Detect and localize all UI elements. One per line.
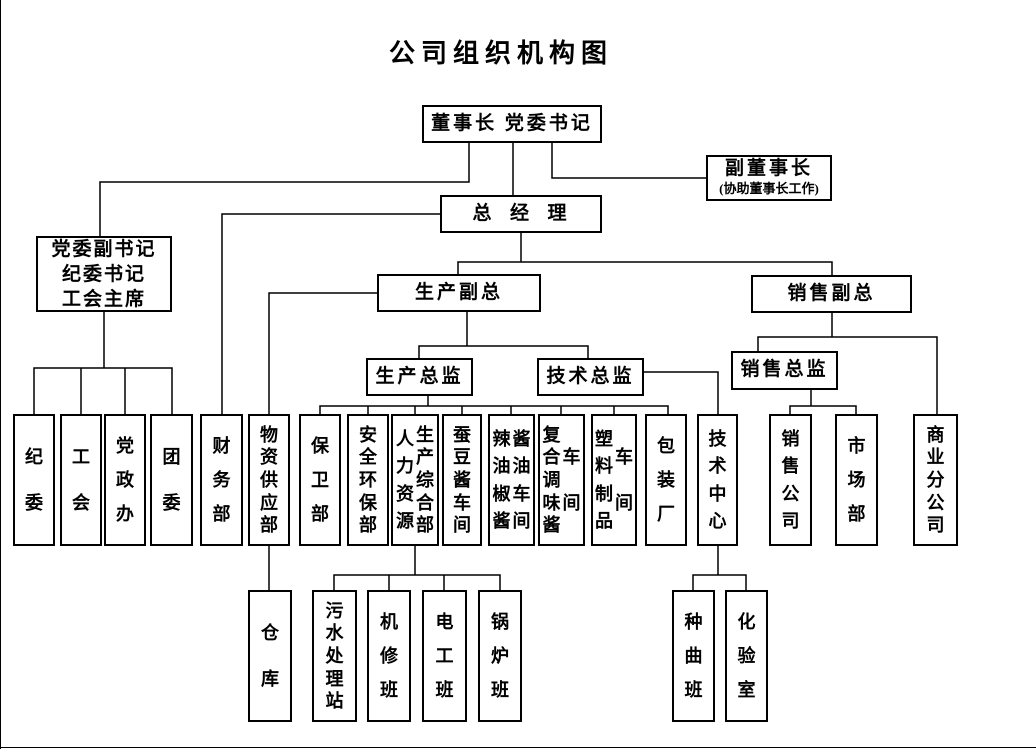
- production-director-box: 生产总监: [366, 358, 473, 396]
- dept-packaging-factory-label: 包装厂: [657, 421, 675, 539]
- party-secretary-line2: 纪委书记: [51, 262, 156, 287]
- dept-plastic-products-label: 塑料制品: [595, 421, 613, 539]
- dept-chili-soy-sauce-workshop: 辣油椒酱 酱油车间: [488, 414, 535, 546]
- dept-safety-env-label: 安全环保部: [359, 421, 377, 539]
- dept-commercial-branch-label: 商业分公司: [927, 421, 945, 539]
- dept-labor-union-label: 工会: [72, 421, 90, 539]
- dept-security: 保卫部: [299, 414, 341, 546]
- dept-plastic-products-workshop: 塑料制品 车间: [591, 414, 637, 546]
- sales-vp-label: 销售副总: [787, 283, 875, 306]
- team-laboratory-label: 化验室: [738, 597, 756, 715]
- team-sewage-treatment: 污水处理站: [312, 590, 357, 722]
- dept-hr-label: 人力资源: [396, 421, 414, 539]
- dept-labor-union: 工会: [60, 414, 102, 546]
- dept-production-general-label: 生产综合部: [416, 421, 434, 539]
- dept-compound-seasoning-workshop: 复合调味酱 车间: [538, 414, 585, 546]
- team-sewage-treatment-label: 污水处理站: [326, 597, 344, 715]
- team-boiler: 锅炉班: [478, 590, 522, 722]
- dept-youth-league: 团委: [150, 414, 193, 546]
- dept-party-admin-office: 党政办: [104, 414, 146, 546]
- vice-chairman-box: 副董事长 (协助董事长工作): [706, 155, 832, 201]
- dept-material-supply-label: 物资供应部: [260, 421, 278, 539]
- general-manager-box: 总 经 理: [440, 195, 602, 233]
- dept-technical-center-label: 技术中心: [709, 421, 727, 539]
- org-chart-page: 公司组织机构图: [0, 0, 1036, 749]
- party-secretary-box: 党委副书记 纪委书记 工会主席: [36, 236, 172, 312]
- dept-hr-production-general: 人力资源 生产综合部: [391, 414, 439, 546]
- team-laboratory: 化验室: [725, 590, 768, 722]
- dept-safety-env: 安全环保部: [347, 414, 389, 546]
- sales-director-box: 销售总监: [731, 351, 838, 390]
- dept-sales-company-label: 销售公司: [782, 421, 800, 539]
- team-machine-repair-label: 机修班: [380, 597, 398, 715]
- party-secretary-labels: 党委副书记 纪委书记 工会主席: [51, 237, 156, 312]
- team-electrician-label: 电工班: [436, 597, 454, 715]
- dept-finance-label: 财务部: [213, 421, 231, 539]
- dept-plastic-workshop-label: 车间: [615, 421, 633, 539]
- production-director-label: 生产总监: [375, 366, 463, 389]
- dept-technical-center: 技术中心: [697, 414, 738, 546]
- chairman-box: 董事长 党委书记: [422, 105, 602, 143]
- production-vp-box: 生产副总: [377, 274, 541, 312]
- chairman-label: 董事长 党委书记: [431, 113, 593, 136]
- team-machine-repair: 机修班: [367, 590, 411, 722]
- team-electrician: 电工班: [422, 590, 467, 722]
- dept-discipline-committee: 纪委: [13, 414, 55, 546]
- dept-packaging-factory: 包装厂: [645, 414, 687, 546]
- dept-material-supply: 物资供应部: [248, 414, 290, 546]
- technical-director-box: 技术总监: [537, 358, 644, 396]
- technical-director-label: 技术总监: [546, 366, 634, 389]
- dept-sales-company: 销售公司: [769, 414, 812, 546]
- dept-marketing: 市场部: [835, 414, 878, 546]
- dept-youth-league-label: 团委: [163, 421, 181, 539]
- dept-soy-sauce-workshop-label: 酱油车间: [513, 421, 531, 539]
- dept-commercial-branch: 商业分公司: [913, 414, 958, 546]
- vice-chairman-label: 副董事长: [725, 158, 813, 181]
- production-vp-label: 生产副总: [415, 282, 503, 305]
- sales-director-label: 销售总监: [740, 359, 828, 382]
- dept-discipline-committee-label: 纪委: [25, 421, 43, 539]
- team-koji-culture: 种曲班: [672, 590, 715, 722]
- dept-compound-seasoning-label: 复合调味酱: [543, 421, 561, 539]
- dept-chili-paste-label: 辣油椒酱: [493, 421, 511, 539]
- team-boiler-label: 锅炉班: [491, 597, 509, 715]
- dept-broad-bean-paste-workshop-label: 蚕豆酱车间: [453, 421, 471, 539]
- sales-vp-box: 销售副总: [751, 275, 912, 313]
- team-warehouse-label: 仓库: [261, 597, 279, 715]
- dept-finance: 财务部: [200, 414, 243, 546]
- general-manager-label: 总 经 理: [472, 203, 569, 226]
- dept-security-label: 保卫部: [311, 421, 329, 539]
- party-secretary-line3: 工会主席: [51, 287, 156, 312]
- party-secretary-line1: 党委副书记: [51, 237, 156, 262]
- team-warehouse: 仓库: [248, 590, 292, 722]
- dept-broad-bean-paste-workshop: 蚕豆酱车间: [442, 414, 482, 546]
- team-koji-culture-label: 种曲班: [685, 597, 703, 715]
- dept-marketing-label: 市场部: [848, 421, 866, 539]
- dept-compound-seasoning-workshop-label: 车间: [563, 421, 581, 539]
- vice-chairman-note: (协助董事长工作): [719, 181, 819, 198]
- dept-party-admin-office-label: 党政办: [116, 421, 134, 539]
